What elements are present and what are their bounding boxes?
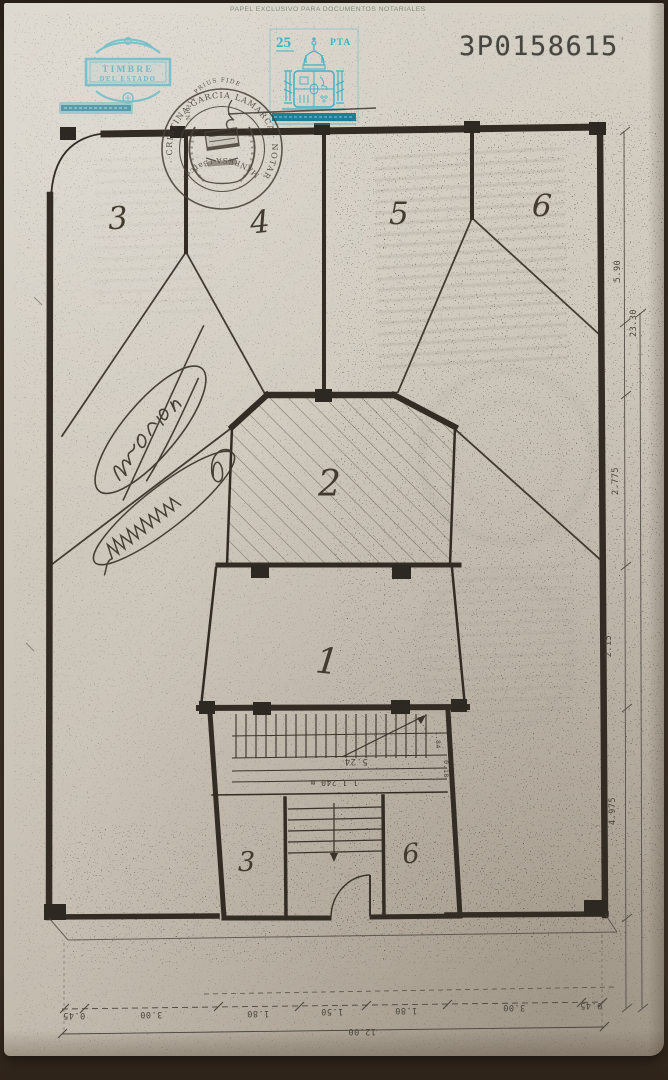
noise-overlay — [14, 13, 664, 1053]
notarial-paper-sheet: PAPEL EXCLUSIVO PARA DOCUMENTOS NOTARIAL… — [4, 3, 664, 1056]
tax-stamp-currency: PTA — [330, 38, 351, 48]
tax-stamp-value: 25 — [276, 35, 291, 51]
teal-stamp-fragment — [58, 101, 138, 117]
notary-seal: · CRISTINA GARCIA LAMARCA · NOTARIO · MA… — [142, 68, 302, 228]
floor-plan: 3 4 5 6 2 1 3 6 5.24 1 1.240 m 1.84 0.18… — [4, 3, 664, 1056]
